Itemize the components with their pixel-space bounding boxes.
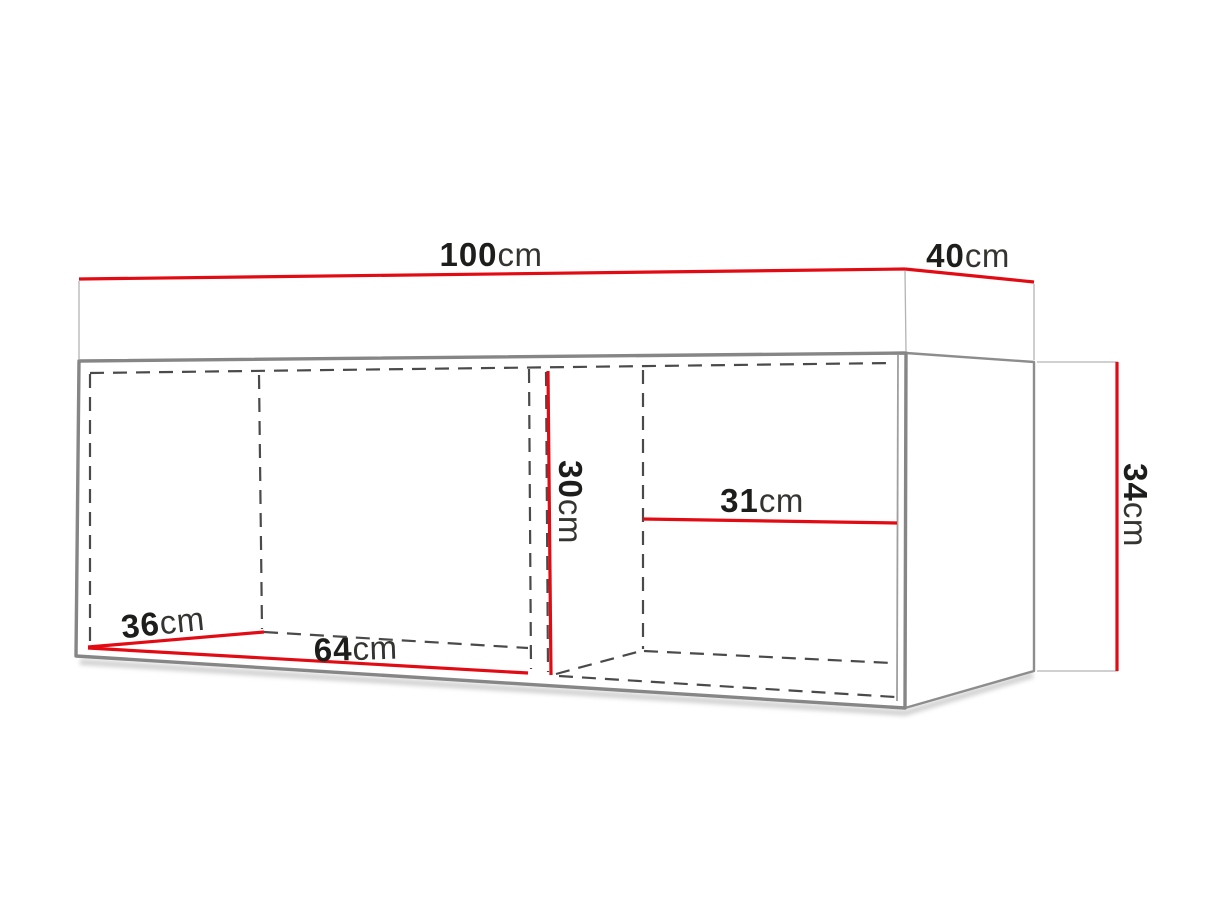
depth-dimension-label: 40cm: [926, 237, 1010, 274]
interior-height-dimension-value: 30: [552, 460, 589, 499]
right-compartment-width-dimension-value: 31: [720, 482, 759, 519]
left-compartment-width-dimension-value: 64: [313, 630, 353, 668]
width-extension-line-right: [905, 271, 906, 351]
height-dimension-value: 34: [1117, 463, 1154, 502]
height-dimension-unit: cm: [1117, 502, 1154, 547]
right-compartment-width-dimension-label: 31cm: [720, 482, 804, 519]
height-dimension-label: 34cm: [1117, 463, 1154, 547]
interior-depth-dimension-value: 36: [119, 604, 161, 645]
right-compartment-width-dimension-unit: cm: [759, 482, 804, 519]
interior-depth-dimension-unit: cm: [158, 600, 207, 642]
interior-height-dimension-unit: cm: [552, 499, 589, 544]
left-compartment-width-dimension-label: 64cm: [313, 629, 398, 669]
cabinet-inner-right-wall-edge: [897, 355, 898, 701]
width-dimension-label: 100cm: [439, 236, 542, 273]
depth-dimension-unit: cm: [965, 237, 1010, 274]
interior-height-dimension-label: 30cm: [552, 460, 589, 544]
width-dimension-value: 100: [439, 236, 497, 273]
furniture-dimension-diagram: 100cm 40cm 34cm 30cm 31cm 36cm 64cm: [0, 0, 1214, 910]
depth-dimension-value: 40: [926, 237, 965, 274]
left-compartment-width-dimension-unit: cm: [352, 629, 398, 668]
cabinet-side-face: [905, 353, 1034, 708]
diagram-canvas: 100cm 40cm 34cm 30cm 31cm 36cm 64cm: [0, 0, 1214, 910]
width-dimension-unit: cm: [498, 236, 543, 273]
